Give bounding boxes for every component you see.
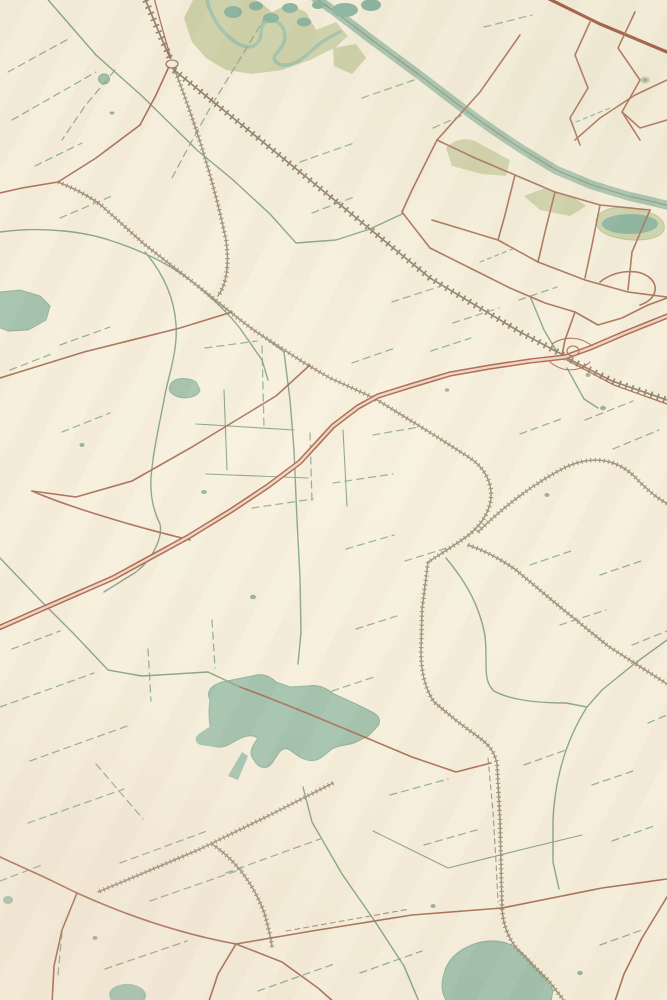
pond-blob-6 [312,1,324,9]
pond-blob-2 [249,2,263,11]
bush-dot [577,971,583,975]
bush-dot [80,443,85,447]
map-viewport[interactable] [0,0,667,1000]
bush-dot [600,406,606,410]
pond-mid [169,379,200,398]
bush-dot [201,490,207,494]
pond-blob-4 [282,3,298,13]
pond-blob-5 [297,18,311,27]
pond-dot-a [3,896,13,904]
bush-dot [586,373,591,377]
bush-dot [93,936,98,940]
water-dot-ne [643,78,648,82]
railway-station [166,60,178,68]
bush-dot [431,904,436,908]
bush-dot [110,111,115,114]
bush-dot [445,388,449,392]
bush-dot [545,493,550,497]
pond-blob-7 [332,3,358,17]
map-canvas[interactable] [0,0,667,1000]
pond-east-water [602,214,658,234]
pond-blob-1 [224,6,242,18]
bush-dot [250,595,256,599]
